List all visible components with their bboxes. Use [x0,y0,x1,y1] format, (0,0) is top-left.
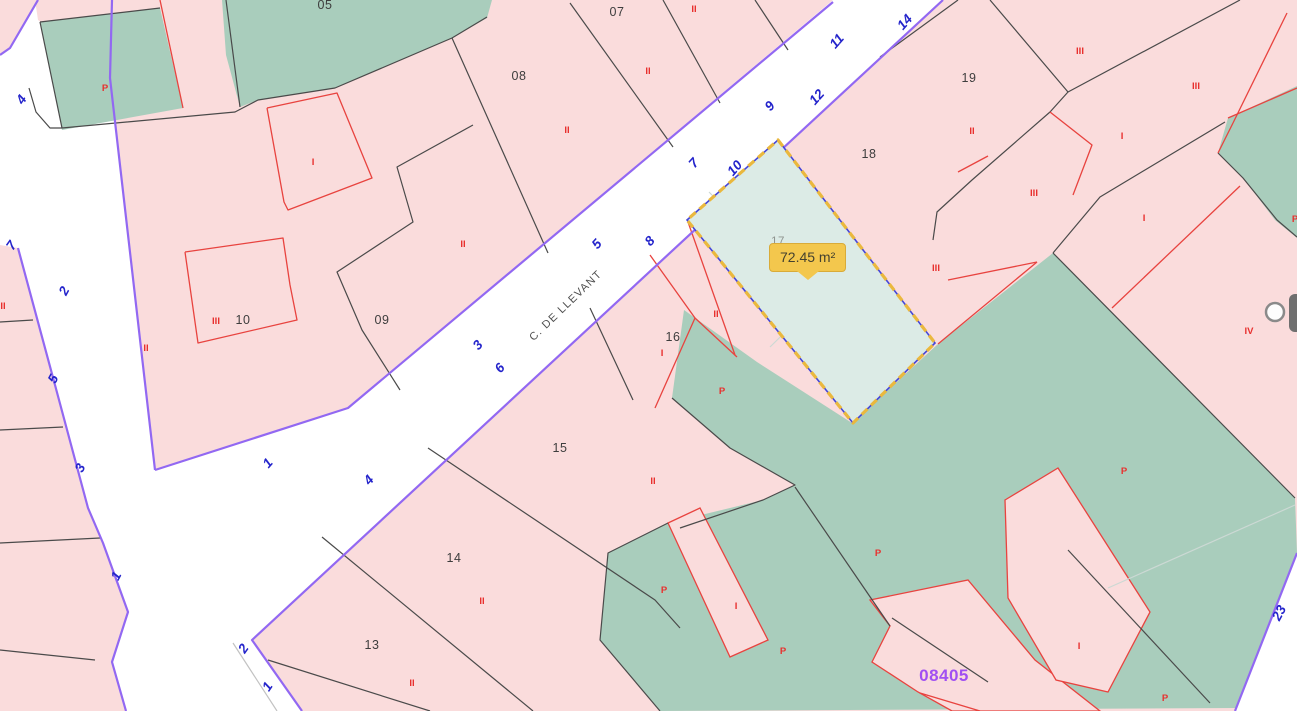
floor-mark: II [645,66,650,77]
floor-mark: II [969,126,974,137]
map-canvas[interactable]: 050708091013141516181917PIIIIIIIIIIIIIII… [0,0,1297,711]
patio-mark: P [1292,214,1297,225]
floor-mark: II [650,476,655,487]
floor-mark: III [212,316,220,327]
patio-mark: P [1121,466,1128,477]
floor-mark: II [143,343,148,354]
parcel-label-16: 16 [666,330,681,344]
parcel-label-13: 13 [365,638,380,652]
parcel-label-19: 19 [962,71,977,85]
patio-mark: P [780,646,787,657]
floor-mark: III [1030,188,1038,199]
patio-mark: P [1162,693,1169,704]
floor-mark: III [1076,46,1084,57]
floor-mark: I [1121,131,1124,142]
floor-mark: III [1192,81,1200,92]
parcel-label-07: 07 [610,5,625,19]
floor-mark: II [460,239,465,250]
measurement-tooltip: 72.45 m² [769,243,846,272]
floor-mark: P [102,83,109,94]
parcel-label-09: 09 [375,313,390,327]
parcel-label-14: 14 [447,551,462,565]
parcel-label-15: 15 [553,441,568,455]
parcel-label-10: 10 [236,313,251,327]
floor-mark: II [691,4,696,15]
parcel-label-18: 18 [862,147,877,161]
floor-mark: I [661,348,664,359]
floor-mark: II [713,309,718,320]
edge-panel-button[interactable] [1289,294,1297,332]
circle-marker-icon[interactable] [1266,303,1284,321]
patio-mark: P [719,386,726,397]
postal-code-label: 08405 [919,666,969,685]
floor-mark: II [409,678,414,689]
patio-mark: P [875,548,882,559]
parcel-label-05: 05 [318,0,333,12]
parcel-label-08: 08 [512,69,527,83]
floor-mark: I [735,601,738,612]
map-viewport[interactable]: 050708091013141516181917PIIIIIIIIIIIIIII… [0,0,1297,711]
floor-mark: II [479,596,484,607]
floor-mark: III [932,263,940,274]
floor-mark: I [312,157,315,168]
patio-mark: P [661,585,668,596]
floor-mark: II [0,301,5,312]
floor-mark: IV [1245,326,1255,337]
floor-mark: I [1078,641,1081,652]
floor-mark: II [564,125,569,136]
floor-mark: I [1143,213,1146,224]
